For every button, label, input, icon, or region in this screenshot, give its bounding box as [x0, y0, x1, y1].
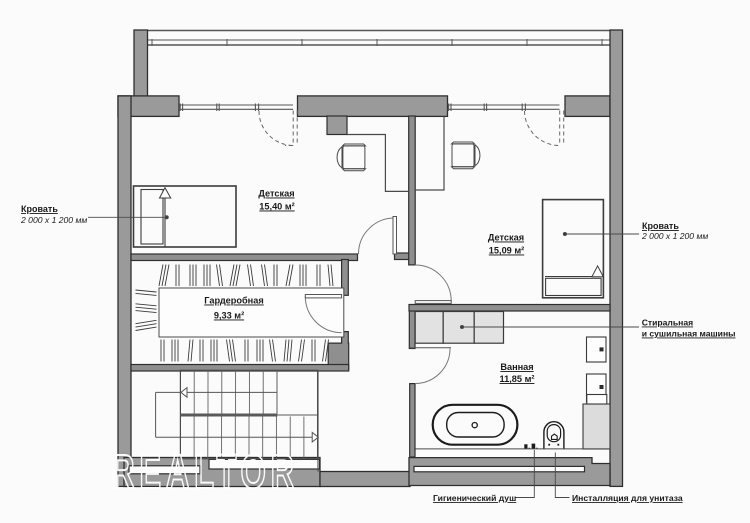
- svg-text:11,85 м²: 11,85 м²: [500, 374, 535, 384]
- svg-text:Детская: Детская: [258, 189, 294, 199]
- svg-text:Детская: Детская: [488, 233, 524, 243]
- svg-text:Инсталляция для унитаза: Инсталляция для унитаза: [572, 493, 683, 503]
- svg-text:2 000 х 1 200 мм: 2 000 х 1 200 мм: [20, 215, 87, 225]
- svg-text:Гардеробная: Гардеробная: [204, 296, 263, 306]
- svg-text:15,09 м²: 15,09 м²: [489, 246, 524, 256]
- svg-text:и сушильная машины: и сушильная машины: [642, 329, 736, 339]
- svg-text:15,40 м²: 15,40 м²: [259, 202, 294, 212]
- svg-text:2 000 х 1 200 мм: 2 000 х 1 200 мм: [641, 231, 708, 241]
- svg-text:Кровать: Кровать: [642, 221, 679, 231]
- svg-text:Стиральная: Стиральная: [642, 318, 693, 328]
- svg-text:Кровать: Кровать: [21, 204, 58, 214]
- svg-text:REALTOR: REALTOR: [111, 445, 299, 499]
- svg-text:9,33 м²: 9,33 м²: [214, 311, 244, 321]
- svg-text:Ванная: Ванная: [500, 362, 533, 372]
- svg-text:Гигиенический душ: Гигиенический душ: [433, 493, 516, 503]
